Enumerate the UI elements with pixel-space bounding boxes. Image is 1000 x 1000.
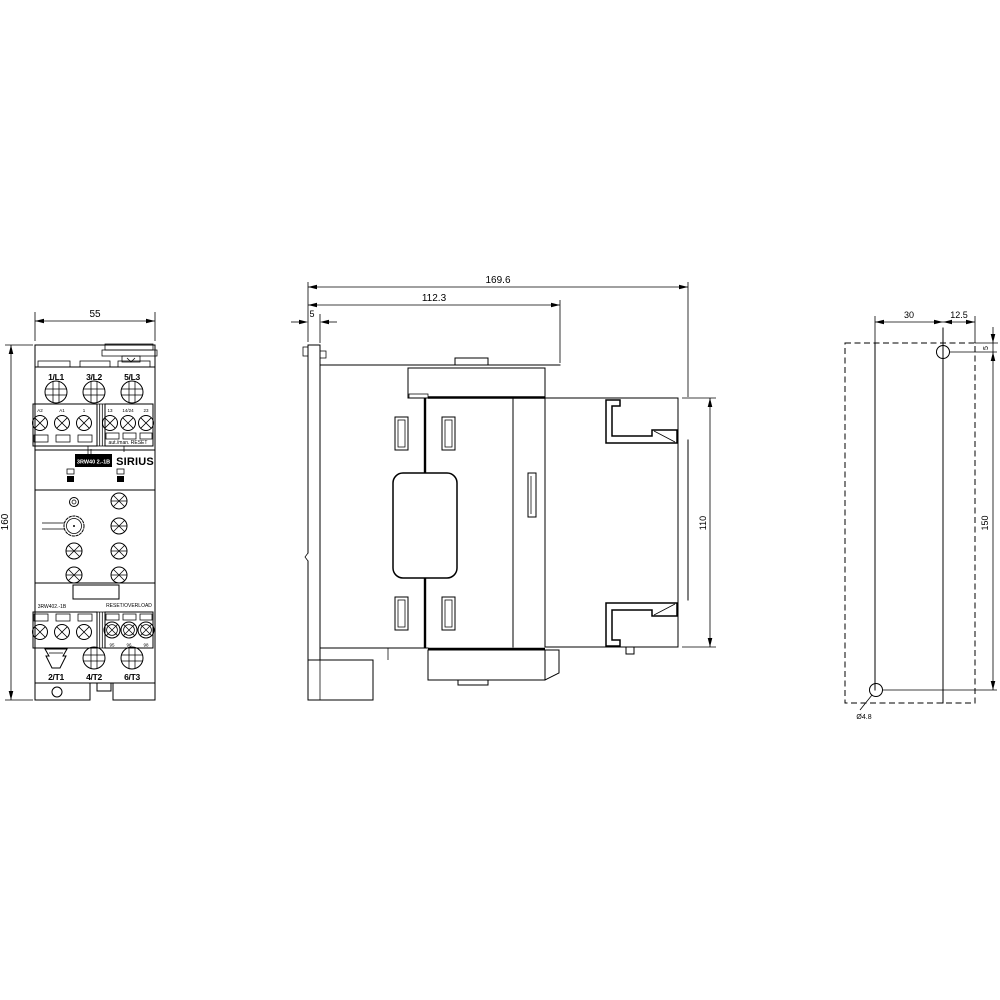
mount-height-label: 110 (698, 516, 708, 530)
front-view: 55 160 (0, 309, 157, 700)
release-pin-icon (626, 647, 634, 654)
terminal-a1-label: A1 (59, 408, 65, 413)
power-terminals-in: 1/L1 3/L2 5/L3 (45, 372, 143, 403)
control-screw-icon (139, 416, 154, 431)
mounting-holes: Ø4.8 (856, 346, 949, 722)
hole-diameter-label: Ø4.8 (856, 714, 871, 721)
type-plate-text: 3RW40 2.-1B (77, 460, 110, 466)
status-leds (67, 469, 124, 482)
side-mount-height-dimension: 110 (682, 398, 716, 647)
terminal-1l1-label: 1/L1 (48, 372, 64, 382)
rear-hole-offset-dimension: 30 (875, 310, 943, 343)
side-view: 169.6 112.3 5 (291, 275, 716, 700)
terminal-2t1-label: 2/T1 (48, 672, 64, 682)
side-front-plate-dimension: 5 (291, 309, 337, 343)
power-screw-icon (45, 381, 67, 403)
depth-front-label: 112.3 (422, 293, 447, 304)
heatsink-barrel (393, 473, 457, 578)
relay-screw-icon (121, 622, 137, 638)
side-depth-total-dimension: 169.6 (308, 275, 688, 397)
side-upper-housing (320, 358, 560, 398)
terminal-4t2-label: 4/T2 (86, 672, 102, 682)
mounting-hole-bottom-icon (870, 684, 883, 697)
terminal-95-label: 95 (109, 643, 115, 648)
power-terminals-out: 2/T1 4/T2 6/T3 (45, 647, 143, 682)
top-offset-label: 5 (983, 346, 990, 350)
adjustment-field (42, 493, 127, 583)
dimension-drawing: 55 160 (0, 0, 1000, 1000)
depth-total-label: 169.6 (485, 275, 510, 286)
brand-logo: SIRIUS (116, 456, 154, 468)
reset-note: RESET/OVERLOAD (106, 603, 152, 609)
side-front-bezel (303, 345, 373, 700)
reset-button-window (73, 585, 119, 599)
side-depth-front-dimension: 112.3 (308, 293, 560, 363)
din-clip-top (102, 344, 157, 362)
hole-edge-label: 12.5 (950, 310, 968, 320)
control-terminals-top: A2 A1 1 13 14/24 23 aut./man. RESET (33, 404, 154, 454)
terminal-1424-label: 14/24 (122, 408, 134, 413)
reset-area: 3RW402.-1B RESET/OVERLOAD (38, 585, 153, 610)
power-screw-icon (83, 647, 105, 669)
device-outline-dashed (845, 343, 975, 703)
control-screw-icon (55, 625, 70, 640)
front-width-label: 55 (89, 309, 101, 320)
type-note: 3RW402.-1B (38, 604, 67, 610)
led-window-icon (117, 469, 124, 474)
terminal-13-label: 13 (107, 408, 113, 413)
power-screw-icon (121, 647, 143, 669)
led-icon (117, 476, 124, 482)
potentiometer-icon (111, 518, 127, 534)
din-clip-bottom-icon (606, 603, 677, 646)
relay-screw-icon (138, 622, 154, 638)
front-height-dimension: 160 (0, 345, 33, 700)
terminal-1-label: 1 (83, 408, 86, 413)
potentiometer-icon (111, 567, 127, 583)
terminal-3l2-label: 3/L2 (86, 372, 102, 382)
control-screw-icon (55, 416, 70, 431)
side-mid-body (393, 398, 545, 648)
control-screw-icon (77, 625, 92, 640)
rotary-knob (42, 516, 84, 536)
side-lower-housing (320, 648, 559, 685)
front-height-label: 160 (0, 513, 11, 530)
relay-screw-icon (104, 622, 120, 638)
label-strip: 3RW40 2.-1B SIRIUS (75, 454, 154, 468)
control-terminals-bottom: 95 96 98 (33, 612, 155, 648)
power-screw-icon (83, 381, 105, 403)
power-screw-icon (121, 381, 143, 403)
front-feet (35, 683, 155, 700)
potentiometer-icon (66, 543, 82, 559)
terminal-a2-label: A2 (37, 408, 43, 413)
potentiometer-icon (111, 543, 127, 559)
aux-note: aut./man. RESET (109, 440, 148, 446)
foot-hole-icon (52, 687, 62, 697)
indicator-led-icon (70, 498, 79, 507)
side-rear-block (545, 398, 688, 654)
din-clip-top-icon (606, 400, 677, 443)
terminal-98-label: 98 (143, 643, 149, 648)
rear-hole-edge-dimension: 12.5 (943, 310, 975, 343)
rear-view: 30 12.5 5 150 Ø4.8 (845, 310, 998, 721)
potentiometer-icon (111, 493, 127, 509)
front-plate-label: 5 (309, 309, 314, 319)
front-width-dimension: 55 (35, 309, 155, 341)
wire-clamp-icon (45, 649, 67, 668)
hole-spacing-label: 150 (980, 515, 990, 530)
hole-offset-label: 30 (904, 310, 914, 320)
control-screw-icon (121, 416, 136, 431)
vent-slots (395, 417, 536, 630)
terminal-5l3-label: 5/L3 (124, 372, 140, 382)
terminal-6t3-label: 6/T3 (124, 672, 140, 682)
control-screw-icon (77, 416, 92, 431)
led-window-icon (67, 469, 74, 474)
potentiometer-icon (66, 567, 82, 583)
terminal-23-label: 23 (143, 408, 149, 413)
rear-vertical-dimensions: 5 150 (883, 327, 998, 690)
led-icon (67, 476, 74, 482)
